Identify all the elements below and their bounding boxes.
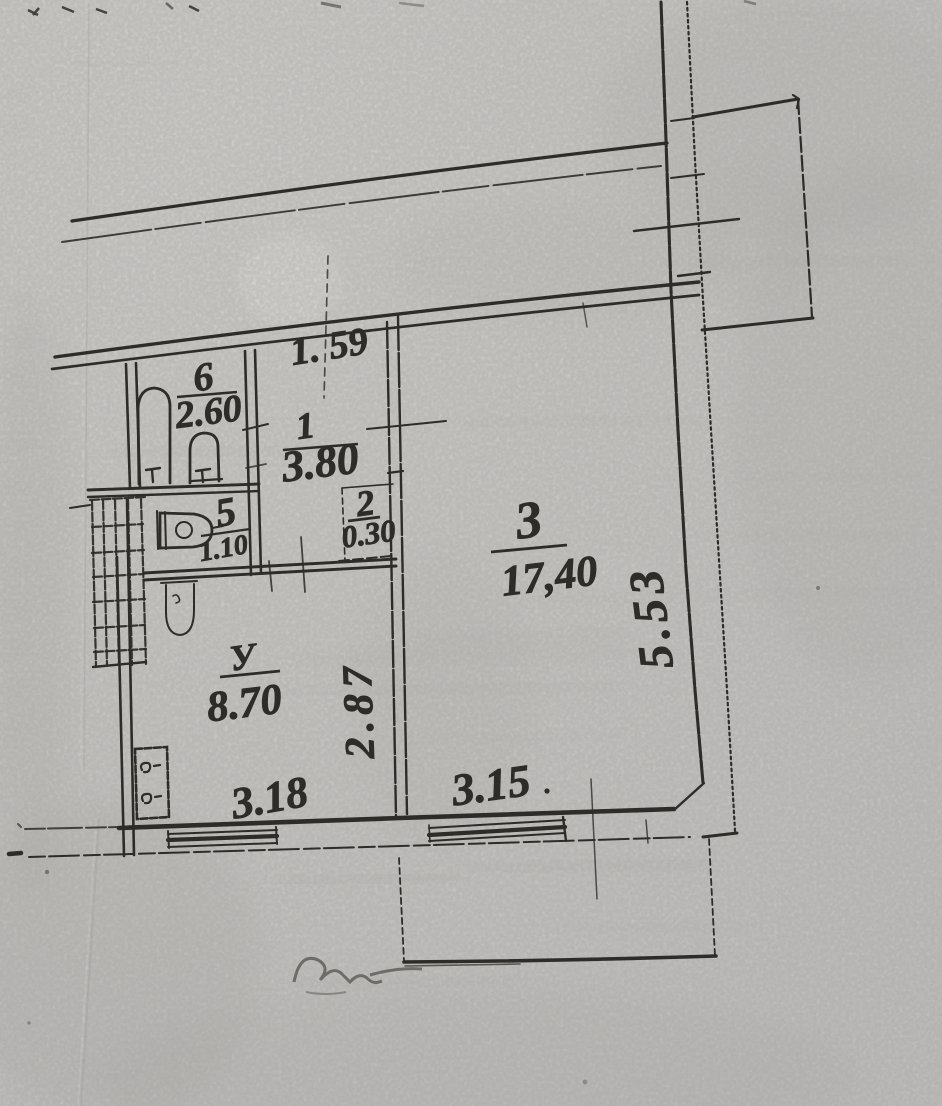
svg-text:8.70: 8.70 — [204, 676, 284, 732]
svg-text:3.80: 3.80 — [278, 434, 361, 492]
svg-text:2.87: 2.87 — [335, 660, 384, 760]
svg-text:0.30: 0.30 — [339, 512, 398, 554]
svg-text:2.60: 2.60 — [172, 387, 244, 437]
